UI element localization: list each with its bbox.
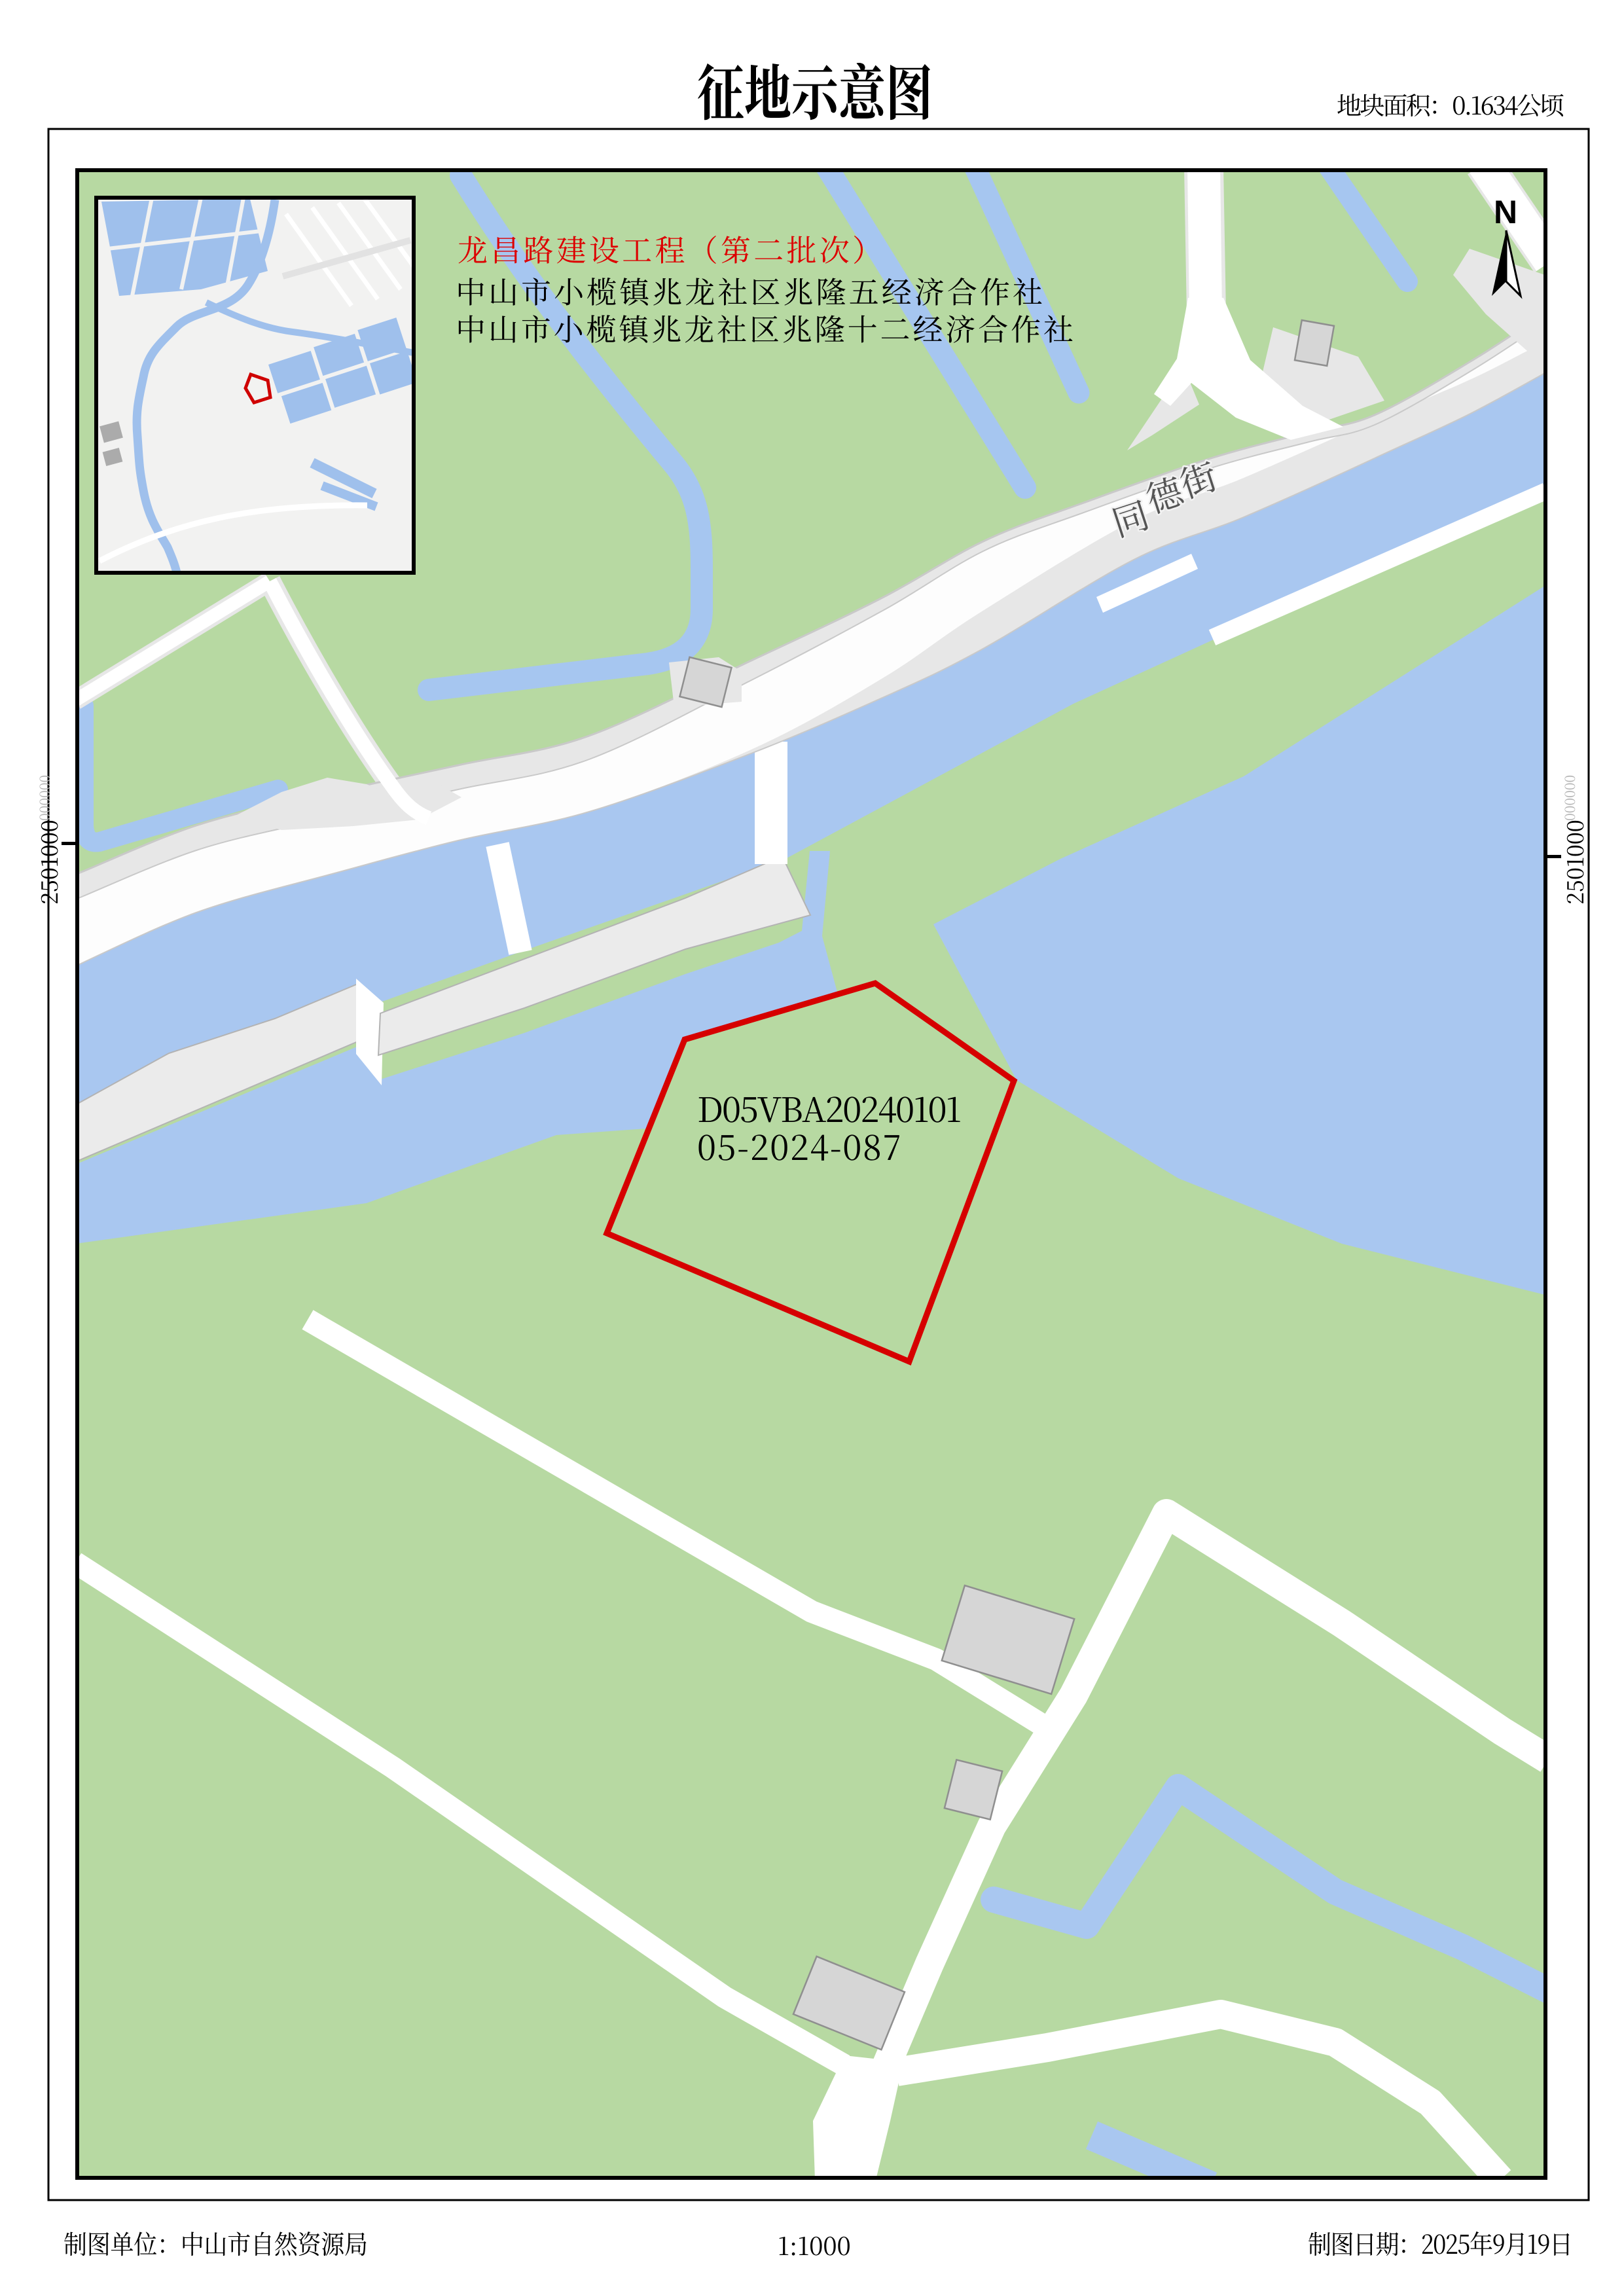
svg-text:N: N [1494,194,1517,230]
